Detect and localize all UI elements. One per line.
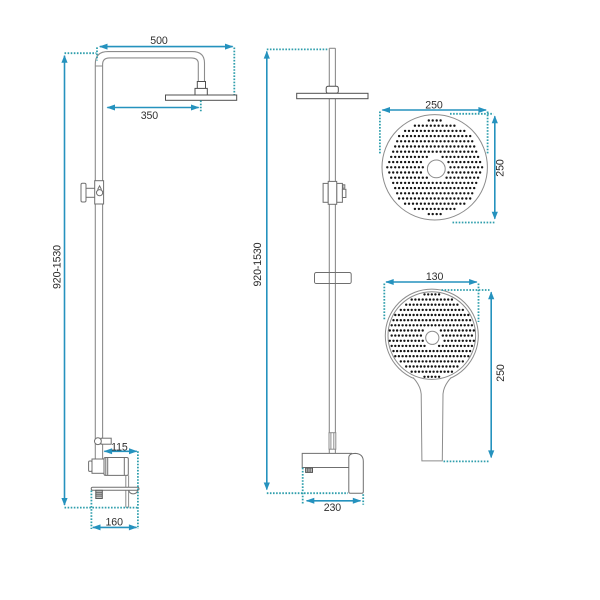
- svg-text:230: 230: [324, 502, 342, 514]
- svg-text:160: 160: [106, 516, 124, 528]
- svg-text:250: 250: [425, 100, 443, 112]
- svg-text:920-1530: 920-1530: [52, 245, 64, 289]
- svg-text:920-1530: 920-1530: [252, 242, 264, 286]
- svg-text:115: 115: [111, 441, 128, 453]
- svg-text:130: 130: [426, 271, 444, 283]
- svg-text:250: 250: [494, 159, 506, 177]
- svg-text:250: 250: [495, 364, 507, 382]
- svg-text:350: 350: [141, 110, 159, 122]
- svg-text:500: 500: [150, 35, 168, 47]
